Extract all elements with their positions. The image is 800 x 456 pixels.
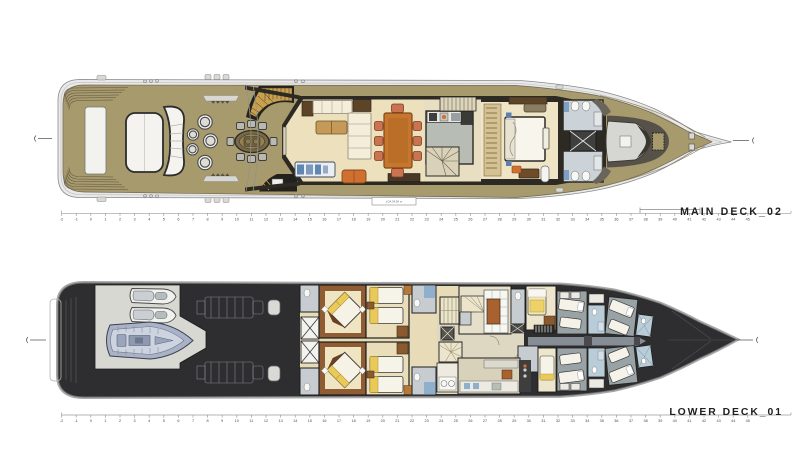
svg-text:12: 12 — [264, 419, 268, 423]
svg-text:34: 34 — [585, 419, 589, 423]
svg-text:24: 24 — [439, 217, 443, 221]
svg-text:5: 5 — [163, 217, 165, 221]
svg-text:-1: -1 — [75, 217, 78, 221]
svg-text:13: 13 — [278, 217, 282, 221]
svg-text:7: 7 — [192, 217, 194, 221]
svg-text:25: 25 — [454, 419, 458, 423]
svg-text:8: 8 — [207, 217, 209, 221]
svg-text:19: 19 — [366, 419, 370, 423]
svg-text:12: 12 — [264, 217, 268, 221]
svg-text:43: 43 — [716, 419, 720, 423]
svg-text:18: 18 — [351, 419, 355, 423]
svg-text:45: 45 — [746, 217, 750, 221]
svg-text:29: 29 — [512, 217, 516, 221]
svg-text:16: 16 — [322, 419, 326, 423]
svg-text:33: 33 — [570, 217, 574, 221]
svg-text:LOWER DECK_01: LOWER DECK_01 — [669, 407, 783, 418]
svg-text:24: 24 — [439, 419, 443, 423]
svg-text:21: 21 — [395, 217, 399, 221]
svg-text:25: 25 — [454, 217, 458, 221]
svg-text:10: 10 — [235, 419, 239, 423]
svg-text:-1: -1 — [75, 419, 78, 423]
svg-text:37: 37 — [629, 419, 633, 423]
svg-text:17: 17 — [337, 419, 341, 423]
svg-text:41: 41 — [687, 419, 691, 423]
svg-text:40: 40 — [673, 217, 677, 221]
svg-text:15: 15 — [308, 419, 312, 423]
svg-text:45: 45 — [746, 419, 750, 423]
svg-text:17: 17 — [337, 217, 341, 221]
svg-text:39: 39 — [658, 217, 662, 221]
svg-text:35: 35 — [600, 419, 604, 423]
svg-text:22: 22 — [410, 419, 414, 423]
svg-text:26: 26 — [468, 419, 472, 423]
svg-text:16: 16 — [322, 217, 326, 221]
svg-text:10: 10 — [235, 217, 239, 221]
svg-text:15: 15 — [308, 217, 312, 221]
svg-text:38: 38 — [643, 217, 647, 221]
svg-text:0: 0 — [90, 217, 92, 221]
svg-text:4: 4 — [148, 217, 150, 221]
svg-text:3: 3 — [134, 419, 136, 423]
svg-text:3: 3 — [134, 217, 136, 221]
svg-text:14: 14 — [293, 419, 297, 423]
svg-text:28: 28 — [497, 217, 501, 221]
svg-text:20: 20 — [381, 419, 385, 423]
svg-text:-2: -2 — [60, 419, 63, 423]
svg-text:44: 44 — [731, 419, 735, 423]
svg-text:14: 14 — [293, 217, 297, 221]
svg-text:38: 38 — [643, 419, 647, 423]
svg-text:11: 11 — [249, 217, 253, 221]
svg-text:21: 21 — [395, 419, 399, 423]
svg-text:30: 30 — [527, 217, 531, 221]
svg-text:27: 27 — [483, 419, 487, 423]
svg-text:43: 43 — [716, 217, 720, 221]
svg-text:30: 30 — [527, 419, 531, 423]
svg-text:-2: -2 — [60, 217, 63, 221]
svg-text:39: 39 — [658, 419, 662, 423]
svg-text:31: 31 — [541, 419, 545, 423]
svg-text:27: 27 — [483, 217, 487, 221]
svg-text:11: 11 — [249, 419, 253, 423]
svg-text:26: 26 — [468, 217, 472, 221]
svg-text:6: 6 — [177, 419, 179, 423]
svg-text:7: 7 — [192, 419, 194, 423]
svg-text:9: 9 — [221, 419, 223, 423]
svg-text:22: 22 — [410, 217, 414, 221]
svg-text:20: 20 — [381, 217, 385, 221]
svg-text:9: 9 — [221, 217, 223, 221]
svg-text:4: 4 — [148, 419, 150, 423]
svg-text:28: 28 — [497, 419, 501, 423]
svg-text:34: 34 — [585, 217, 589, 221]
svg-text:19: 19 — [366, 217, 370, 221]
svg-text:44: 44 — [731, 217, 735, 221]
svg-text:36: 36 — [614, 217, 618, 221]
svg-text:29: 29 — [512, 419, 516, 423]
svg-text:32: 32 — [556, 419, 560, 423]
svg-text:5: 5 — [163, 419, 165, 423]
svg-text:31: 31 — [541, 217, 545, 221]
svg-text:1: 1 — [104, 217, 106, 221]
svg-text:42: 42 — [702, 217, 706, 221]
svg-text:13: 13 — [278, 419, 282, 423]
svg-text:36: 36 — [614, 419, 618, 423]
svg-text:23: 23 — [424, 419, 428, 423]
svg-text:18: 18 — [351, 217, 355, 221]
svg-text:41: 41 — [687, 217, 691, 221]
svg-text:35: 35 — [600, 217, 604, 221]
svg-text:1: 1 — [104, 419, 106, 423]
svg-text:23: 23 — [424, 217, 428, 221]
svg-text:2: 2 — [119, 217, 121, 221]
svg-text:37: 37 — [629, 217, 633, 221]
svg-text:40: 40 — [673, 419, 677, 423]
svg-text:0: 0 — [90, 419, 92, 423]
svg-text:6: 6 — [177, 217, 179, 221]
svg-text:33: 33 — [570, 419, 574, 423]
svg-text:42: 42 — [702, 419, 706, 423]
svg-text:32: 32 — [556, 217, 560, 221]
svg-text:MAIN DECK_02: MAIN DECK_02 — [680, 206, 783, 218]
svg-text:2: 2 — [119, 419, 121, 423]
svg-text:LOA 34.50 m: LOA 34.50 m — [386, 200, 403, 204]
svg-text:8: 8 — [207, 419, 209, 423]
